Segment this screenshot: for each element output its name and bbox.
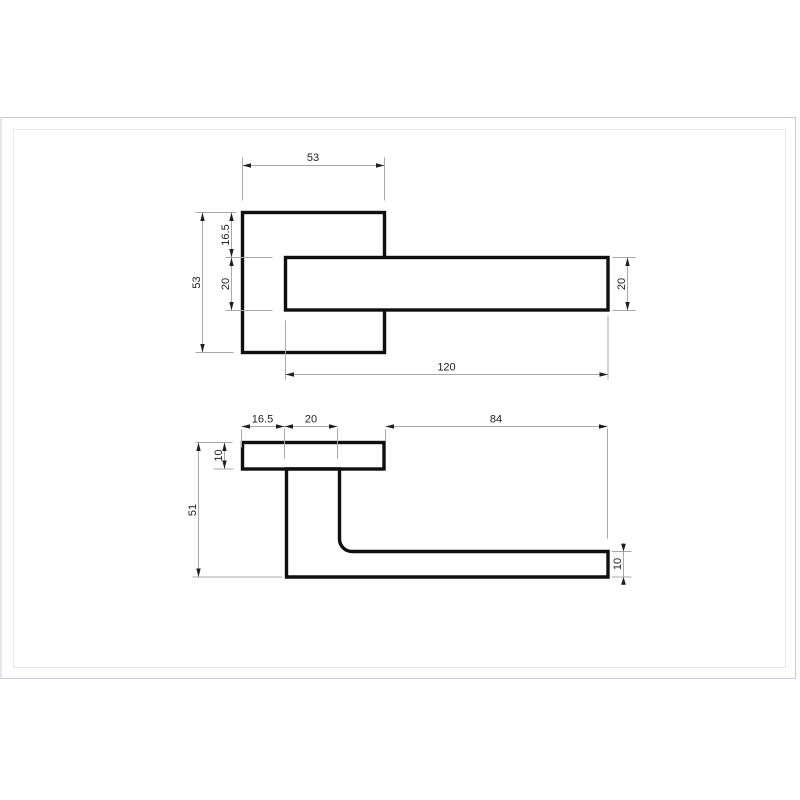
dim-label-front-lever-offset: 16.5: [220, 224, 232, 245]
technical-drawing-canvas: 53 53 16.5 20: [0, 0, 800, 800]
front-lever-bar: [286, 258, 609, 311]
dim-label-front-lever-thickness: 20: [220, 278, 232, 290]
arrowhead: [621, 577, 626, 585]
dim-side-grip-reach: 84: [386, 414, 608, 539]
dim-label-front-lever-length: 120: [437, 362, 455, 374]
side-view: 16.5 20 84 10: [187, 414, 632, 586]
dim-label-front-rose-height: 53: [191, 276, 203, 288]
inner-frame: [14, 130, 786, 668]
dim-label-front-rose-width: 53: [307, 152, 319, 164]
side-lever-profile: [287, 469, 609, 577]
dim-front-lever-offset: 16.5: [220, 213, 232, 258]
outer-frame: [1, 118, 796, 679]
drawing-page: 53 53 16.5 20: [0, 0, 800, 800]
dim-side-rose-depth: 10: [196, 443, 234, 470]
dim-label-side-grip-depth: 10: [612, 558, 624, 570]
dim-side-grip-depth: 10: [612, 543, 632, 585]
dim-label-side-rose-depth: 10: [213, 449, 225, 461]
arrowhead: [621, 544, 626, 552]
dim-label-side-grip-reach: 84: [490, 414, 502, 426]
dim-front-rose-width: 53: [243, 152, 385, 201]
dim-label-side-neck-width: 20: [305, 414, 317, 426]
dim-front-lever-thickness-right: 20: [613, 258, 636, 311]
dim-label-side-total-projection: 51: [187, 504, 199, 516]
dim-label-front-lever-thickness-right: 20: [616, 278, 628, 290]
side-rose-plate: [243, 443, 385, 470]
dim-label-side-rose-edge-to-neck: 16.5: [252, 414, 273, 426]
front-view: 53 53 16.5 20: [191, 152, 636, 380]
